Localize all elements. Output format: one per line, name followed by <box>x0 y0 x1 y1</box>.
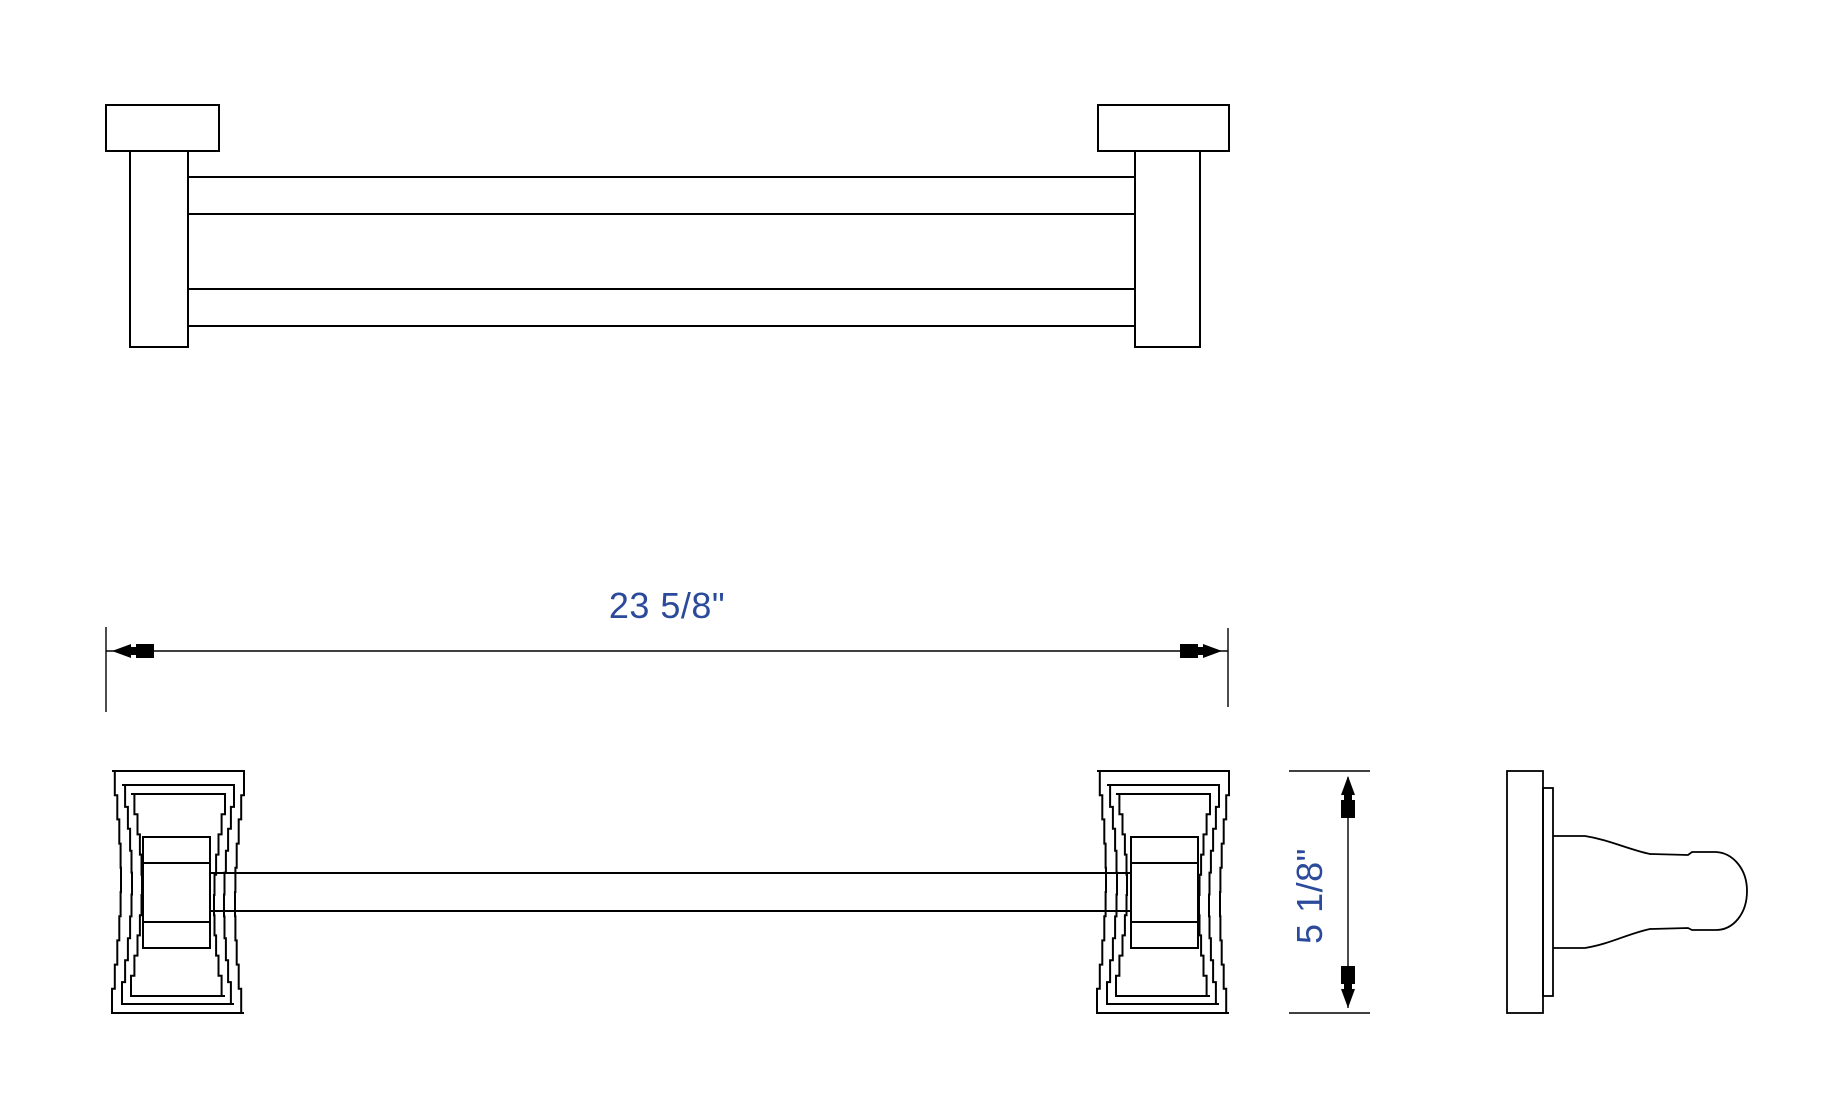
height-dimension-label: 5 1/8" <box>1285 766 1335 1026</box>
front-view <box>112 771 1229 1013</box>
front-left-plate-mid <box>122 785 234 1004</box>
top-view-right-mount-cap <box>1098 105 1229 151</box>
front-right-plate-mid <box>1107 785 1219 1004</box>
top-view-left-post <box>130 151 188 347</box>
drawing-svg <box>0 0 1826 1111</box>
technical-drawing-canvas: 23 5/8" 5 1/8" <box>0 0 1826 1111</box>
width-dim-arrow-right <box>1180 644 1222 658</box>
top-view-rear-bar <box>188 289 1135 326</box>
top-view <box>106 105 1229 347</box>
side-plate-spacer <box>1543 788 1553 996</box>
width-dimension <box>106 627 1228 712</box>
side-view <box>1507 771 1747 1013</box>
side-post-profile <box>1553 836 1747 948</box>
width-dimension-label: 23 5/8" <box>537 584 797 628</box>
front-right-hub <box>1131 837 1198 948</box>
top-view-front-bar <box>188 177 1135 214</box>
side-wall-plate <box>1507 771 1543 1013</box>
top-view-left-mount-cap <box>106 105 219 151</box>
width-dim-arrow-left <box>112 644 154 658</box>
front-left-hub <box>143 837 210 948</box>
height-dim-arrow-up <box>1341 776 1355 818</box>
height-dim-arrow-down <box>1341 966 1355 1008</box>
top-view-right-post <box>1135 151 1200 347</box>
